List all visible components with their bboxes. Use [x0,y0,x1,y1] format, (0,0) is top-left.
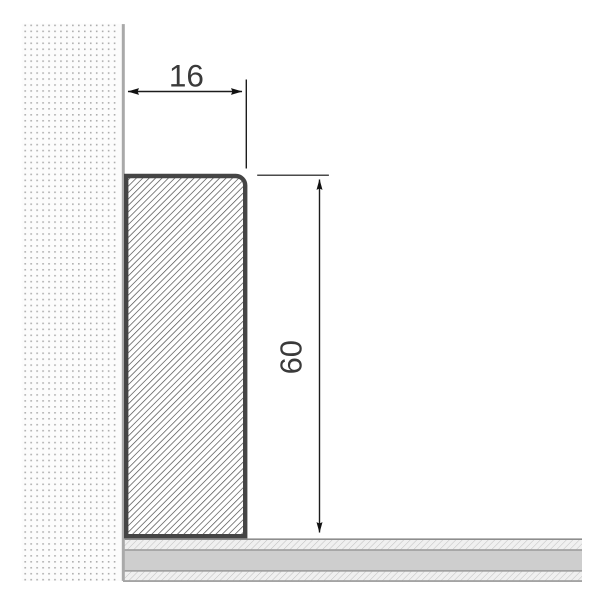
svg-text:16: 16 [169,58,204,94]
svg-text:60: 60 [273,340,308,374]
